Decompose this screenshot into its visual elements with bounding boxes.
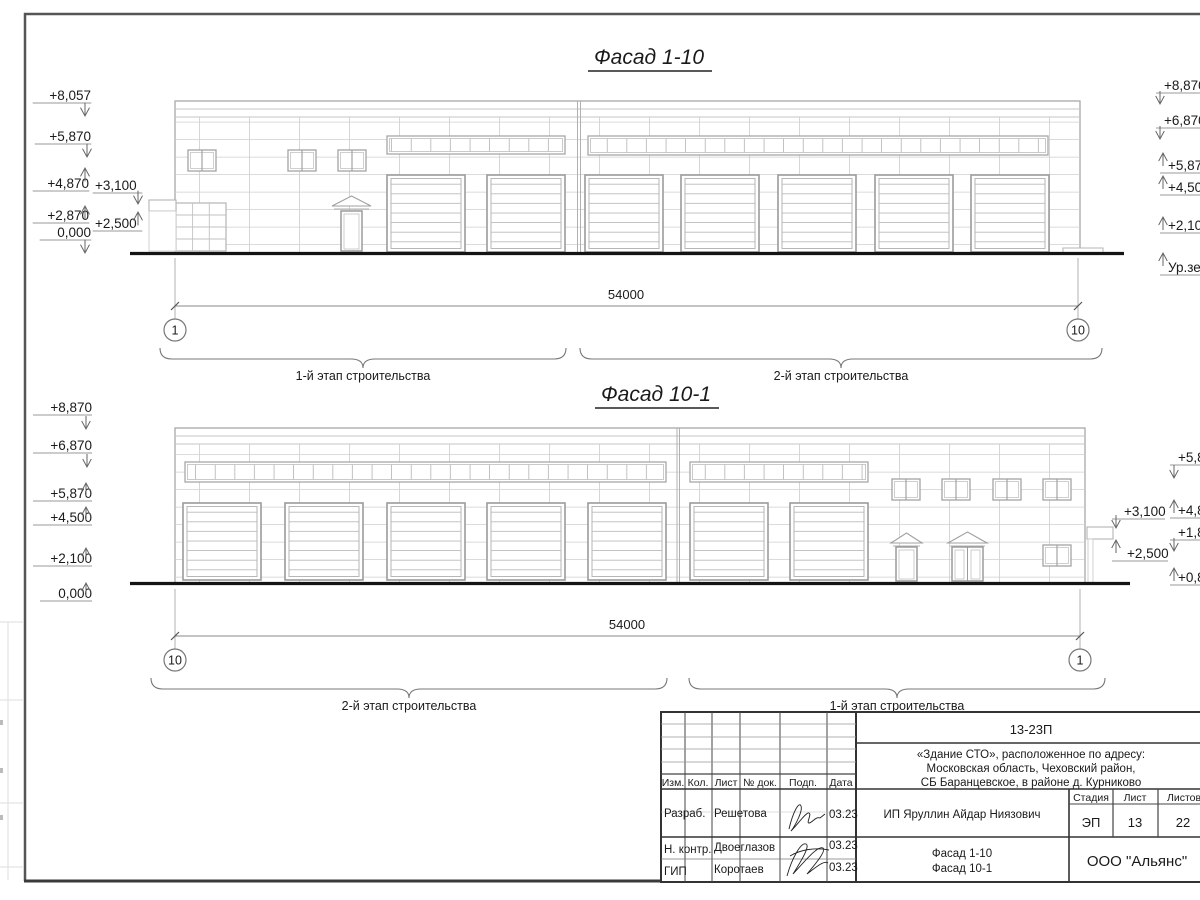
elevation-mark: +3,100 <box>1124 504 1166 519</box>
entrance-door <box>891 533 922 581</box>
ribbon-window <box>690 462 868 482</box>
elevation-mark: +5,87 <box>1168 158 1200 173</box>
window-pair <box>288 150 316 171</box>
stage-header: Стадия <box>1073 792 1109 804</box>
stage-label: 2-й этап строительства <box>342 699 477 713</box>
garage-door <box>387 503 465 580</box>
elevation-mark: +2,10 <box>1168 218 1200 233</box>
elevation-mark: Ур.зе <box>1168 260 1200 275</box>
axis-bubble-label: 10 <box>168 654 182 668</box>
axis-bubble-label: 1 <box>172 324 179 338</box>
facade-drawing-svg: Фасад 1-10 <box>0 0 1200 900</box>
window-pair <box>993 479 1021 500</box>
elevation-mark: 0,000 <box>57 225 91 240</box>
garage-door <box>971 175 1049 252</box>
client-name: ИП Яруллин Айдар Ниязович <box>884 809 1041 821</box>
entrance-double-door <box>948 532 987 581</box>
window-pair <box>942 479 970 500</box>
garage-door <box>778 175 856 252</box>
signer-name: Коротаев <box>714 864 764 876</box>
facade-10-1: Фасад 10-1 <box>33 383 1200 713</box>
project-address-line: Московская область, Чеховский район, <box>927 763 1136 775</box>
window-pair <box>338 150 366 171</box>
garage-door <box>585 175 663 252</box>
facade-1-10: Фасад 1-10 <box>33 46 1200 383</box>
garage-door <box>588 503 666 580</box>
elevation-mark: +4,870 <box>47 176 89 191</box>
annex-canopy <box>149 200 176 251</box>
dimension-text: 54000 <box>609 617 645 632</box>
sheet-header: Лист <box>1124 792 1147 804</box>
garage-door <box>487 503 565 580</box>
elevation-mark: +2,500 <box>1127 546 1169 561</box>
stage-label: 1-й этап строительства <box>296 369 431 383</box>
ribbon-window <box>185 462 666 482</box>
left-margin-strip <box>0 622 24 880</box>
title-block: 13-23П «Здание СТО», расположенное по ад… <box>661 712 1200 882</box>
signer-role: Н. контр. <box>664 844 711 856</box>
drawing-sheet: Фасад 1-10 <box>0 0 1200 900</box>
facade-1-10-title: Фасад 1-10 <box>594 46 704 69</box>
sheets-header: Листов <box>1167 792 1200 804</box>
stage-label: 2-й этап строительства <box>774 369 909 383</box>
garage-door <box>387 175 465 252</box>
dimension-54000: 54000 10 1 <box>164 589 1091 671</box>
signer-role: Разраб. <box>664 808 705 820</box>
storefront-glazing <box>176 203 226 251</box>
elevation-marks-left: +8,870 +6,870 +5,870 +4,500 +2,100 0,000 <box>33 400 92 601</box>
elevation-marks-right: +5,8 +4,8 +1,8 +0,8 <box>1170 450 1200 585</box>
axis-bubble-label: 1 <box>1077 654 1084 668</box>
elevation-mark: +8,057 <box>49 88 91 103</box>
garage-door <box>690 503 768 580</box>
company-name: ООО "Альянс" <box>1087 853 1187 870</box>
axis-bubble-label: 10 <box>1071 324 1085 338</box>
col-data: Дата <box>829 777 852 789</box>
garage-door <box>487 175 565 252</box>
facade-10-1-title: Фасад 10-1 <box>601 383 711 406</box>
window-pair <box>1043 479 1071 500</box>
garage-door <box>183 503 261 580</box>
elevation-mark: +4,8 <box>1178 503 1200 518</box>
elevation-mark: +4,50 <box>1168 180 1200 195</box>
garage-door <box>285 503 363 580</box>
signer-name: Двоеглазов <box>714 842 775 854</box>
col-list: Лист <box>715 777 738 789</box>
elevation-marks-left: +8,057 +5,870 +4,870 +2,870 0,000 +3,100… <box>33 88 142 253</box>
dimension-54000: 54000 1 10 <box>164 258 1089 341</box>
sheets-total: 22 <box>1176 815 1190 830</box>
elevation-mark: +3,100 <box>95 178 137 193</box>
col-izm: Изм. <box>662 777 685 789</box>
signer-date: 03.23 <box>829 862 858 874</box>
elevation-marks-right: +8,870 +6,870 +5,87 +4,50 +2,10 Ур.зе <box>1156 78 1200 275</box>
elevation-mark: +1,8 <box>1178 525 1200 540</box>
window-pair <box>188 150 216 171</box>
garage-door <box>681 175 759 252</box>
elevation-mark: +8,870 <box>50 400 92 415</box>
signer-name: Решетова <box>714 808 767 820</box>
window-pair <box>1043 545 1071 566</box>
window-pair <box>892 479 920 500</box>
elevation-mark: +5,870 <box>49 129 91 144</box>
annex-canopy <box>1087 527 1113 583</box>
stage-braces: 1-й этап строительства 2-й этап строител… <box>160 348 1102 383</box>
sheet-title-line: Фасад 10-1 <box>932 863 992 875</box>
elevation-mark: +0,8 <box>1178 570 1200 585</box>
elevation-marks-inner: +3,100 +2,500 <box>1112 504 1169 561</box>
elevation-mark: +8,870 <box>1164 78 1200 93</box>
col-podp: Подп. <box>789 777 817 789</box>
project-address-line: «Здание СТО», расположенное по адресу: <box>917 749 1145 761</box>
stage-braces: 2-й этап строительства 1-й этап строител… <box>151 678 1105 713</box>
signer-date: 03.23 <box>829 840 858 852</box>
garage-door <box>875 175 953 252</box>
signer-role: ГИП <box>664 866 687 878</box>
sheet-title-line: Фасад 1-10 <box>932 848 992 860</box>
elevation-mark: +5,8 <box>1178 450 1200 465</box>
elevation-mark: 0,000 <box>58 586 92 601</box>
elevation-mark: +6,870 <box>1164 113 1200 128</box>
elevation-mark: +2,500 <box>95 216 137 231</box>
project-address-line: СБ Баранцевское, в районе д. Курниково <box>921 777 1141 789</box>
dimension-text: 54000 <box>608 287 644 302</box>
ribbon-window <box>387 136 565 154</box>
sheet-number: 13 <box>1128 815 1142 830</box>
elevation-mark: +6,870 <box>50 438 92 453</box>
doc-number: 13-23П <box>1010 722 1053 737</box>
ribbon-window <box>588 136 1048 155</box>
signer-date: 03.23 <box>829 809 858 821</box>
col-doc: № док. <box>743 777 777 789</box>
stage-value: ЭП <box>1082 815 1101 830</box>
col-kol: Кол. <box>688 777 709 789</box>
stage-label: 1-й этап строительства <box>830 699 965 713</box>
garage-door <box>790 503 868 580</box>
